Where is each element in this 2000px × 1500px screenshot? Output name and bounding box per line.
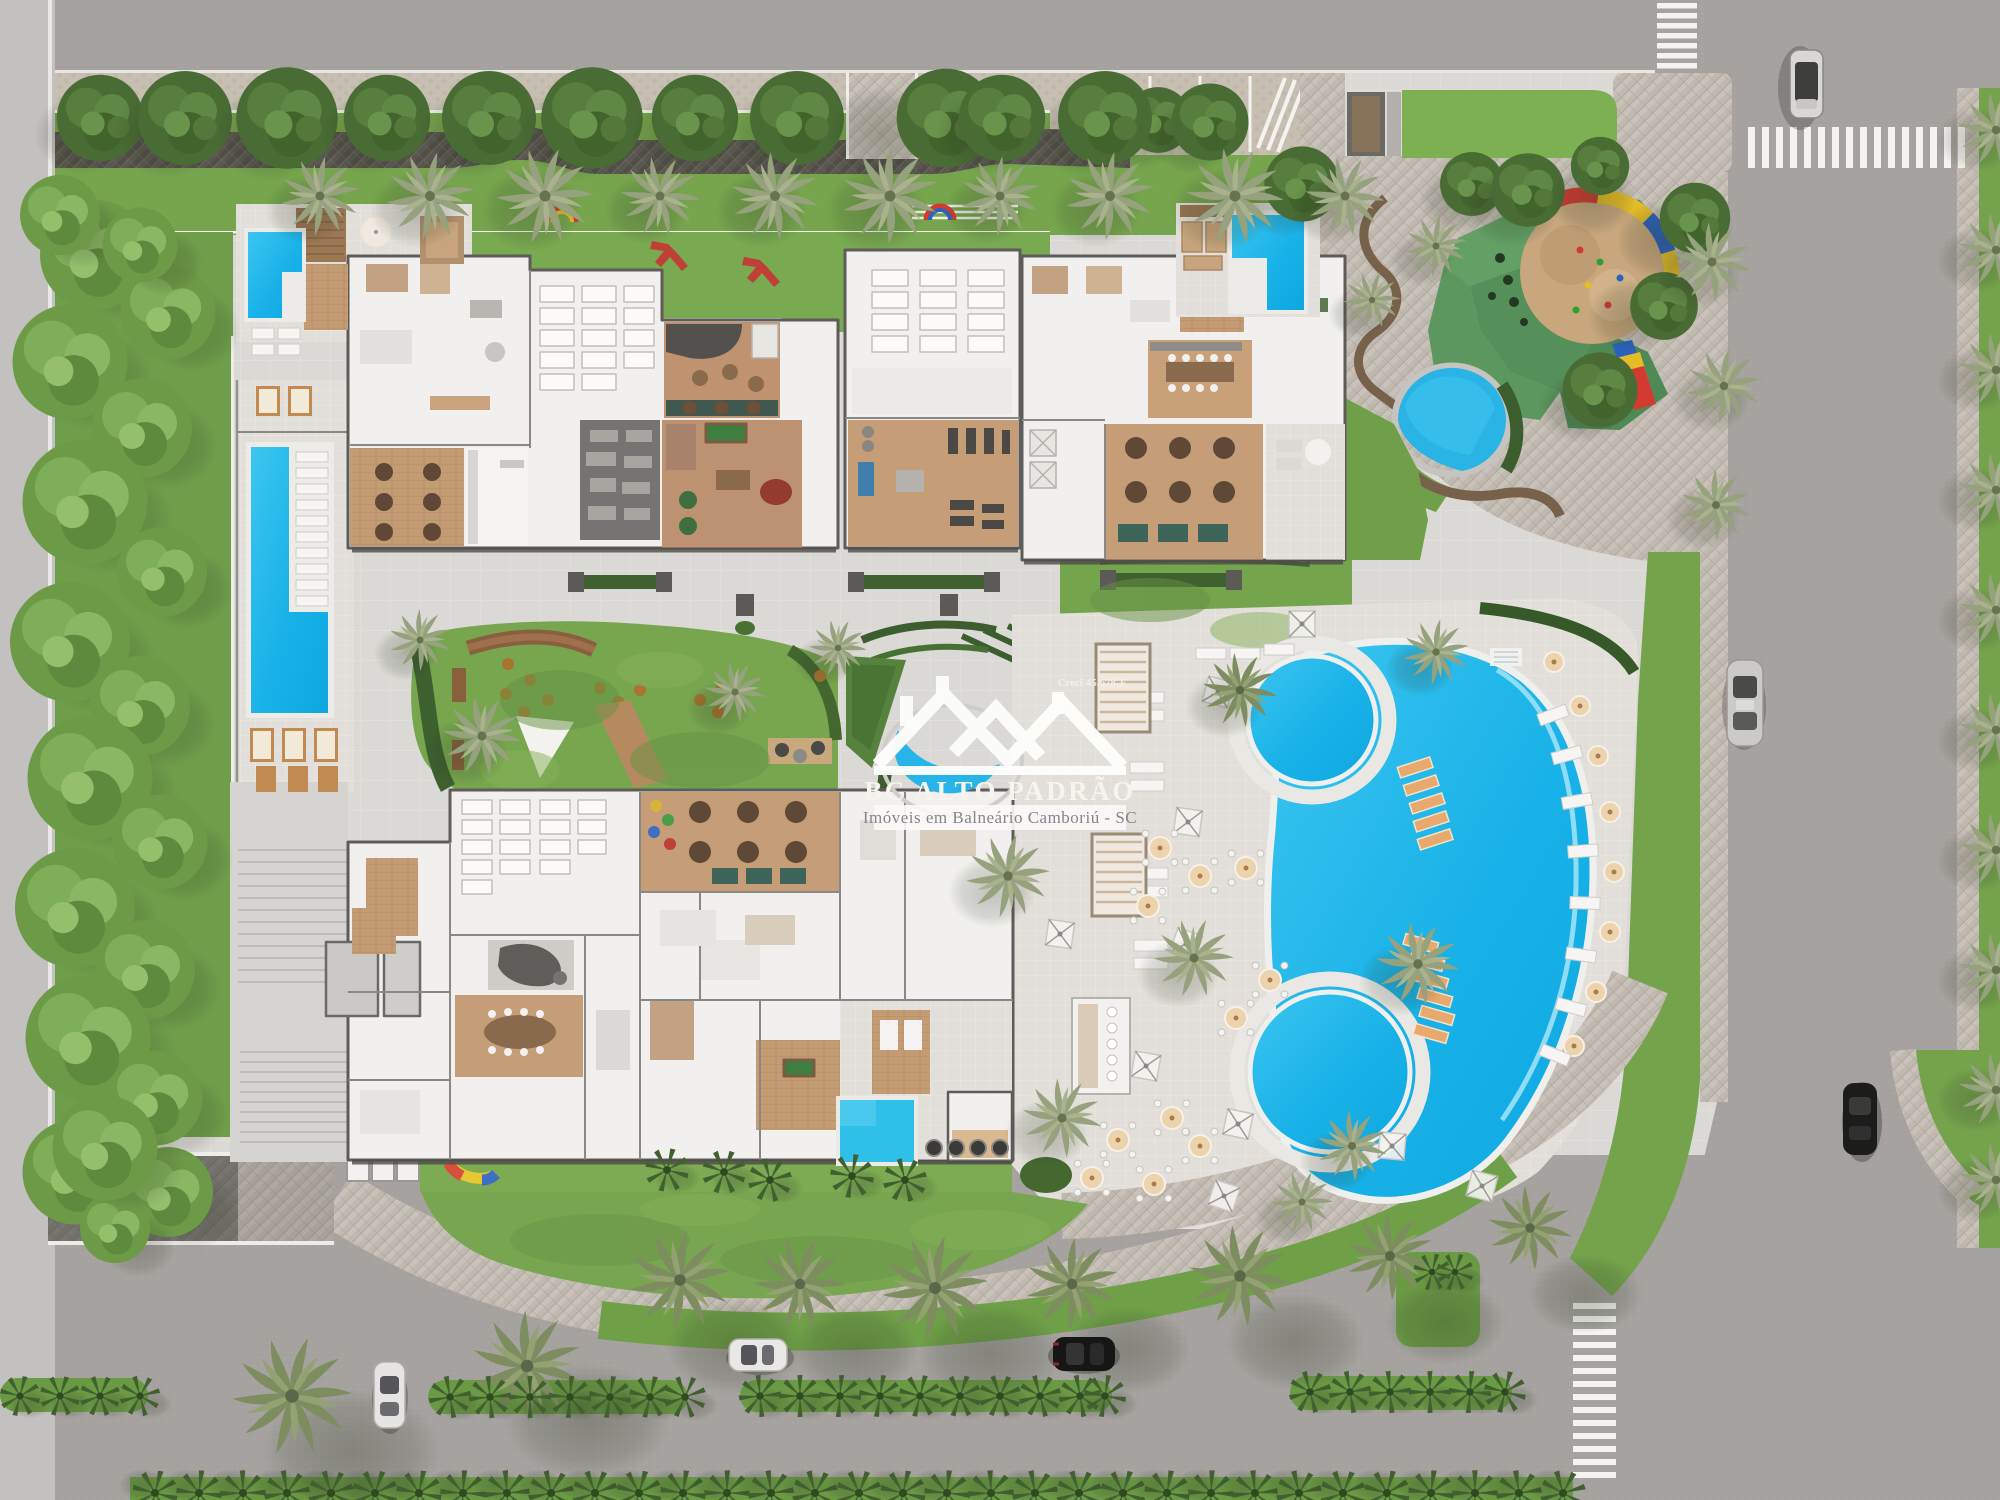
svg-text:Creci 45.678-F: Creci 45.678-F — [1058, 677, 1127, 689]
svg-text:BC ALTO PADRÃO: BC ALTO PADRÃO — [864, 776, 1136, 806]
svg-text:Imóveis em Balneário Camboriú: Imóveis em Balneário Camboriú - SC — [863, 808, 1137, 827]
